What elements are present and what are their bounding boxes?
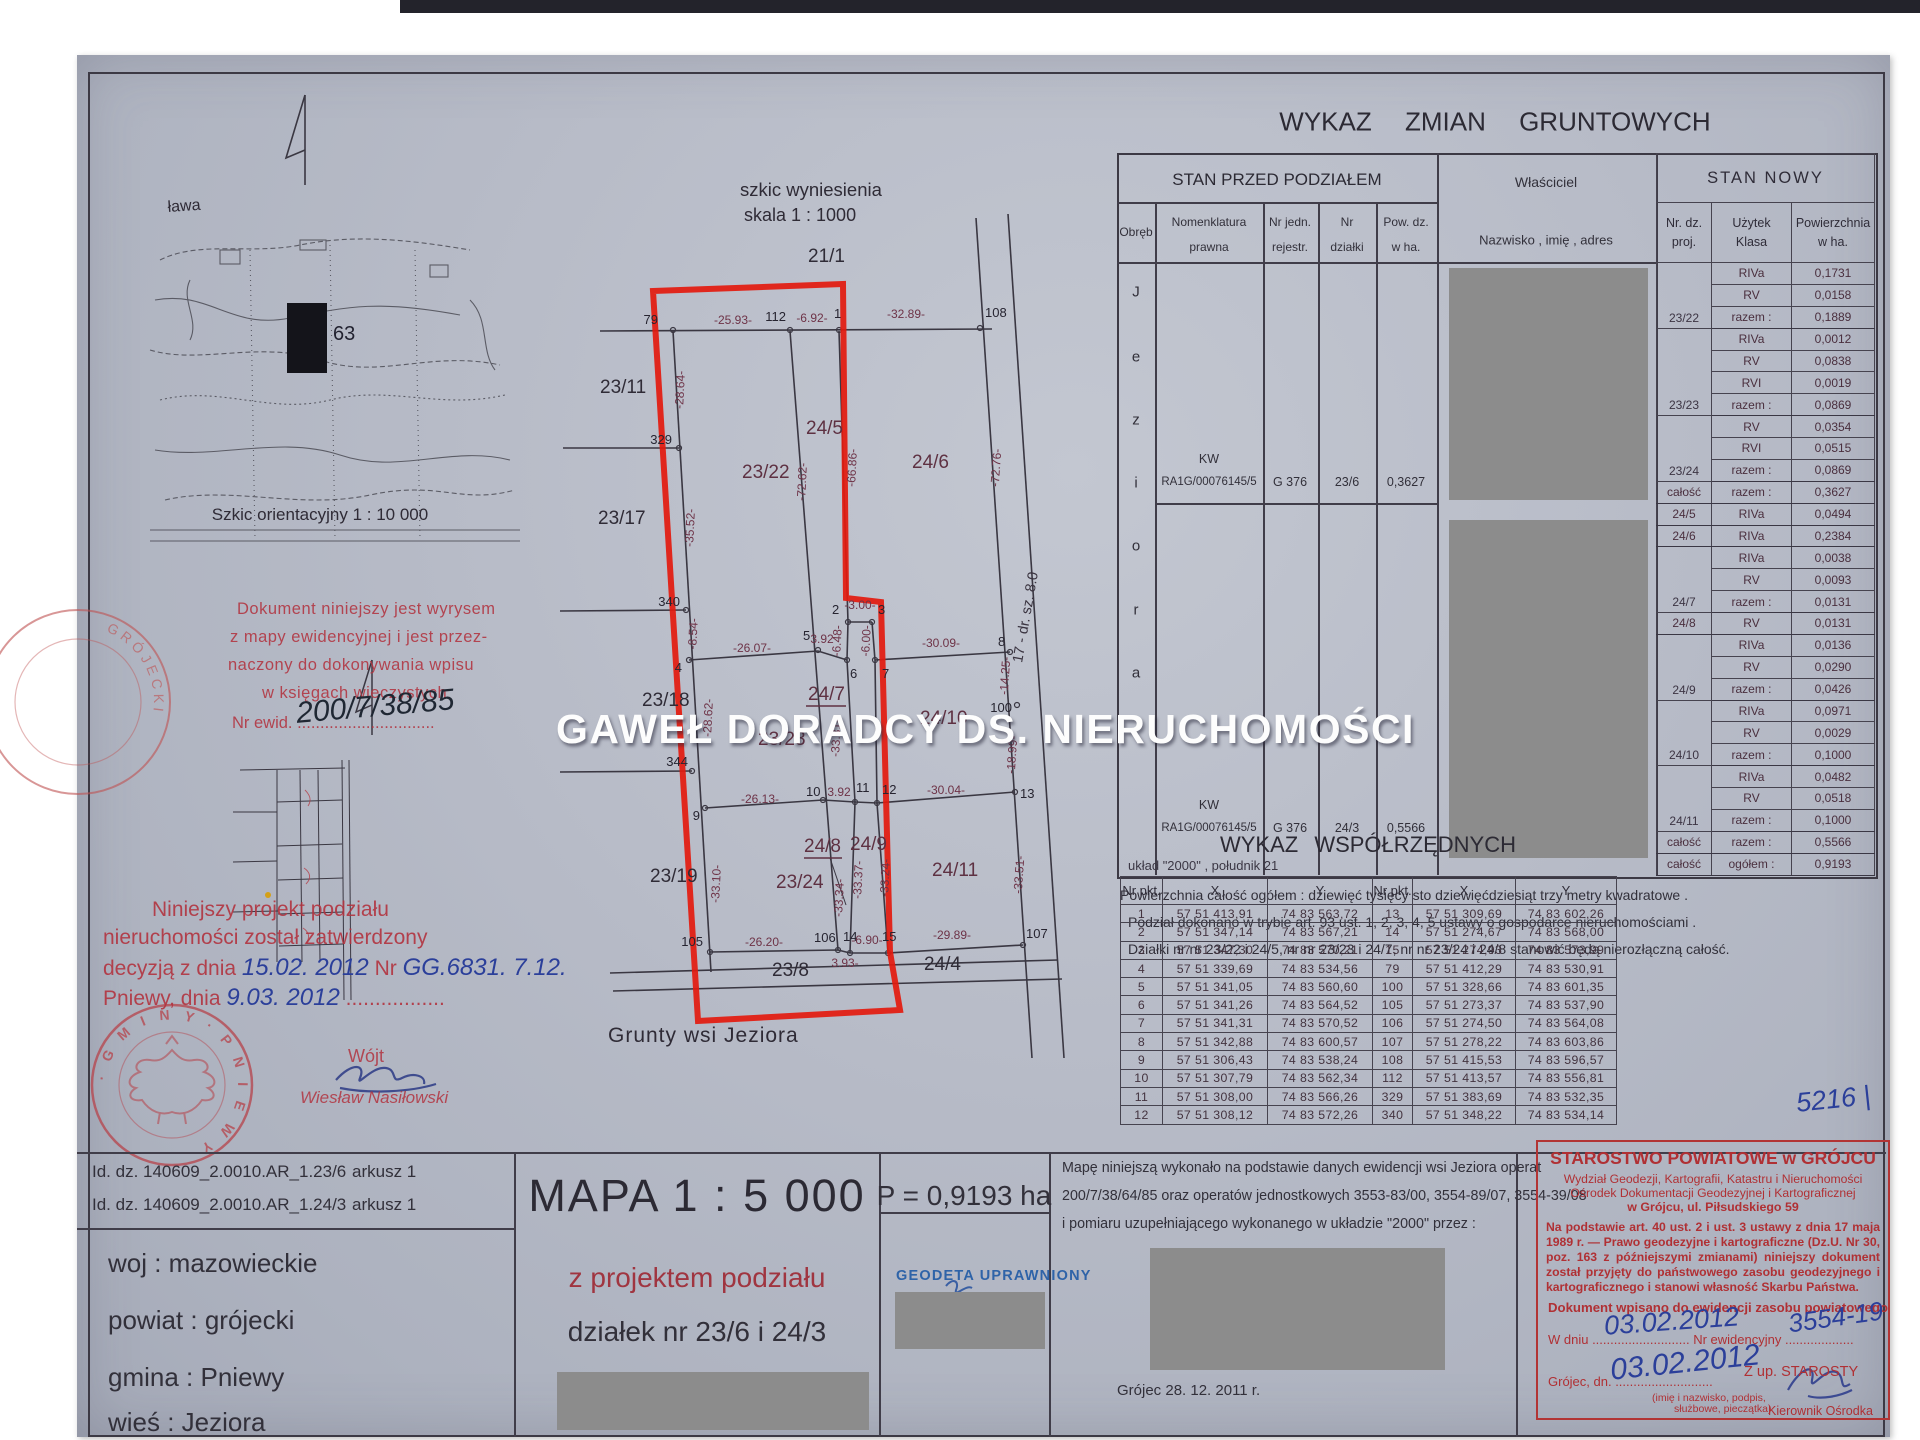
dimension-label: -28.64- <box>672 370 688 409</box>
county: powiat : grójecki <box>108 1305 294 1336</box>
point-label: 9 <box>693 808 700 823</box>
col-header: Nr jedn. <box>1269 215 1311 229</box>
col-header-obreb: Obręb <box>1119 225 1152 239</box>
surveyor-label: GEODETA UPRAWNIONY <box>896 1268 1092 1284</box>
col-header: w ha. <box>1392 240 1421 254</box>
footer-note: 200/7/38/64/85 oraz operatów jednostkowy… <box>1062 1188 1587 1204</box>
parcel-cell: 23/23 <box>1657 328 1712 416</box>
point-label: 344 <box>666 754 688 769</box>
col-header: działki <box>1330 240 1363 254</box>
dimension-label: -30.04- <box>927 783 965 797</box>
col-header: Pow. dz. <box>1383 215 1428 229</box>
dimension-label: -33.51- <box>1011 855 1028 894</box>
footer-note: Mapę niniejszą wykonało na podstawie dan… <box>1062 1160 1541 1176</box>
orientation-place-label: ława <box>167 197 201 216</box>
stamp-position: Kierownik Ośrodka <box>1768 1404 1873 1418</box>
point-label: 329 <box>650 432 672 447</box>
dimension-label: -33.34- <box>831 878 847 917</box>
stamp-authority: Z up. STAROSTY <box>1744 1364 1858 1380</box>
point-label: 107 <box>1026 926 1048 941</box>
col-header: Nr pkt. <box>1373 877 1413 905</box>
col-header: Nr pkt. <box>1121 877 1163 905</box>
scanned-cadastral-document: { "watermark": "GAWEŁ DORADCY DS. NIERUC… <box>0 0 1920 1440</box>
starostwo-stamp: STAROSTWO POWIATOWE w GRÓJCU Wydział Geo… <box>1536 1140 1890 1420</box>
dimension-label: -6.48- <box>829 625 845 657</box>
coord-row: 257 51 347,1474 83 567,211457 51 274,677… <box>1121 923 1617 941</box>
coords-table: Nr pkt.XY Nr pkt.XY 157 51 413,9174 83 5… <box>1120 876 1617 1125</box>
coord-row: 457 51 339,6974 83 534,567957 51 412,297… <box>1121 959 1617 977</box>
dimension-label: -8.54- <box>685 618 701 650</box>
map-scale-title: MAPA 1 : 5 000 <box>528 1170 865 1222</box>
map-subtitle: działek nr 23/6 i 24/3 <box>568 1316 826 1348</box>
owner-redaction <box>1449 520 1648 858</box>
col-header: prawna <box>1189 240 1228 254</box>
col-header: Nr <box>1341 215 1354 229</box>
point-label: 340 <box>658 594 680 609</box>
obreb-letter: o <box>1132 538 1140 555</box>
stamp-title: STAROSTWO POWIATOWE w GRÓJCU <box>1550 1148 1876 1169</box>
parcel-cell: 23/24 <box>1657 416 1712 482</box>
footer-note: i pomiaru uzupełniającego wykonanego w u… <box>1062 1216 1476 1232</box>
dimension-label: -72.62- <box>794 462 810 501</box>
parcel-label: 23/22 <box>742 462 790 483</box>
point-label: 3 <box>878 602 885 617</box>
dimension-label: -6.90- <box>851 933 882 947</box>
approval-stamp-line: decyzją z dnia 15.02. 2012 Nr GG.6831. 7… <box>103 954 567 982</box>
coords-subtitle: układ "2000" , południk 21 <box>1128 858 1278 873</box>
dimension-label: -33.37- <box>850 860 866 899</box>
coord-row: 1157 51 308,0074 83 566,2632957 51 383,6… <box>1121 1087 1617 1105</box>
col-header: Nr. dz.proj. <box>1657 203 1712 263</box>
parcel-label: 23/17 <box>598 508 646 529</box>
orientation-caption: Szkic orientacyjny 1 : 10 000 <box>212 505 428 524</box>
map-id-line: Id. dz. 140609_2.0010.AR_1.24/3 <box>92 1195 346 1215</box>
col-header: UżytekKlasa <box>1712 203 1792 263</box>
parcel-cell: 23/22 <box>1657 263 1712 329</box>
point-label: 4 <box>675 660 682 675</box>
north-arrow-icon <box>286 95 305 185</box>
dimension-label: -26.07- <box>733 641 771 655</box>
dimension-label: -29.89- <box>933 928 971 942</box>
obreb-letter: r <box>1134 602 1139 619</box>
owner-redaction <box>1449 268 1648 500</box>
wyrys-stamp-line: z mapy ewidencyjnej i jest przez- <box>230 628 488 647</box>
col-header: Nomenklatura <box>1172 215 1247 229</box>
dzialka-value: 23/6 <box>1335 475 1359 489</box>
obreb-letter: i <box>1134 475 1137 492</box>
point-label: 15 <box>882 929 896 944</box>
stan-nowy-header: STAN NOWY <box>1657 154 1875 203</box>
svg-text:GRÓJECKI: GRÓJECKI <box>105 619 167 716</box>
sketch-caption: Grunty wsi Jeziora <box>608 1024 799 1047</box>
village: wieś : Jeziora <box>108 1407 266 1438</box>
point-label: 11 <box>856 780 870 795</box>
voivodeship: woj : mazowieckie <box>108 1248 318 1279</box>
parcel-label: 23/11 <box>600 377 646 398</box>
parcel-cell: 24/10 <box>1657 700 1712 766</box>
dimension-label: -26.13- <box>741 792 779 806</box>
map-subtitle-red: z projektem podziału <box>569 1262 826 1294</box>
parcel-label: 24/4 <box>924 954 961 975</box>
dimension-label: -30.09- <box>922 636 960 650</box>
kw-label: KW <box>1199 798 1219 812</box>
eagle-icon <box>130 1036 215 1124</box>
watermark: GAWEŁ DORADCY DS. NIERUCHOMOŚCI <box>556 706 1386 753</box>
dimension-label: -33.24- <box>877 858 893 897</box>
coords-title: WYKAZ WSPÓŁRZĘDNYCH <box>1220 832 1516 858</box>
rejestr-value: G 376 <box>1273 475 1307 489</box>
orientation-parcel-number: 63 <box>333 323 355 345</box>
dimension-label: -35.52- <box>682 508 698 547</box>
stan-nowy-table: STAN NOWY Nr. dz.proj. UżytekKlasa Powie… <box>1656 153 1875 876</box>
dimension-label: -33.10- <box>708 864 724 903</box>
parcel-label: 24/8 <box>804 836 841 857</box>
obreb-letter: z <box>1132 412 1140 429</box>
orientation-sketch <box>150 239 520 541</box>
stan-przed-header: STAN PRZED PODZIAŁEM <box>1172 170 1381 190</box>
dimension-label: -6.92- <box>796 311 827 325</box>
dimension-label: 3.92 <box>827 785 851 799</box>
col-header: Powierzchniaw ha. <box>1792 203 1875 263</box>
point-label: 7 <box>882 666 889 681</box>
point-label: 108 <box>985 305 1007 320</box>
pow-value: 0,3627 <box>1387 475 1425 489</box>
point-label: 8 <box>998 634 1005 649</box>
sheet-number: arkusz 1 <box>352 1162 416 1182</box>
parcel-label: 24/5 <box>806 418 843 439</box>
coord-row: 1057 51 307,7974 83 562,3411257 51 413,5… <box>1121 1069 1617 1087</box>
parcel-label: 24/7 <box>808 684 845 705</box>
obreb-letter: J <box>1132 284 1140 301</box>
gmina-seal-arc-text: · G M I N Y · P N I E W Y <box>93 1006 251 1159</box>
parcel-label: 24/9 <box>850 834 887 855</box>
coord-row: 757 51 341,3174 83 570,5210657 51 274,50… <box>1121 1014 1617 1032</box>
commune: gmina : Pniewy <box>108 1362 284 1393</box>
redaction-box <box>1150 1248 1445 1370</box>
wojt-title: Wójt <box>348 1046 384 1067</box>
point-label: 5 <box>803 628 810 643</box>
parcel-label: 24/6 <box>912 452 949 473</box>
parcel-cell: 24/11 <box>1657 766 1712 832</box>
dimension-label: -32.89- <box>887 307 925 321</box>
kw-number: RA1G/00076145/5 <box>1161 476 1256 488</box>
parcel-label: 23/19 <box>650 866 698 887</box>
wlasciciel-subheader: Nazwisko , imię , adres <box>1479 233 1613 248</box>
point-label: 112 <box>765 309 786 324</box>
coord-row: 157 51 413,9174 83 563,721357 51 309,697… <box>1121 905 1617 923</box>
dimension-label: -6.00- <box>858 625 874 657</box>
wojt-name: Wiesław Nasiłowski <box>300 1088 448 1108</box>
point-label: 10 <box>806 784 820 799</box>
parcel-cell: 24/7 <box>1657 547 1712 613</box>
starostwo-stamp-arc-text: GRÓJECKI <box>105 619 167 716</box>
point-label: 1 <box>834 306 841 321</box>
parcel-label: 24/11 <box>932 860 978 881</box>
orientation-parcel-fill <box>287 303 327 373</box>
map-id-line: Id. dz. 140609_2.0010.AR_1.23/6 <box>92 1162 346 1182</box>
parcel-label: 23/24 <box>776 872 824 893</box>
area-value: P = 0,9193 ha <box>877 1180 1052 1212</box>
wyrys-stamp-line: Dokument niniejszy jest wyrysem <box>237 600 496 619</box>
sheet-number: arkusz 1 <box>352 1195 416 1215</box>
redaction-box <box>557 1372 869 1430</box>
coord-row: 557 51 341,0574 83 560,6010057 51 328,66… <box>1121 978 1617 996</box>
wykaz-zmian-title: WYKAZ ZMIAN GRUNTOWYCH <box>1279 107 1710 138</box>
point-label: 106 <box>814 930 836 945</box>
dimension-label: -66.86- <box>844 448 860 487</box>
point-label: 6 <box>850 666 857 681</box>
approval-stamp-line: Pniewy, dnia 9.03. 2012 ................… <box>103 984 445 1012</box>
gmina-pniewy-seal: · G M I N Y · P N I E W Y <box>92 1005 252 1165</box>
col-header: rejestr. <box>1272 240 1308 254</box>
sketch-title: szkic wyniesienia <box>740 179 883 200</box>
coord-row: 857 51 342,8874 83 600,5710757 51 278,22… <box>1121 1033 1617 1051</box>
obreb-letter: a <box>1132 665 1140 682</box>
dimension-label: -14.25- <box>997 656 1014 695</box>
coord-row: 957 51 306,4374 83 538,2410857 51 415,53… <box>1121 1051 1617 1069</box>
dimension-label: -3.00- <box>844 598 875 612</box>
dimension-label: -26.20- <box>745 935 783 949</box>
dimension-label: 3.93- <box>831 956 858 970</box>
approval-stamp-line: nieruchomości został zatwierdzony <box>103 926 427 950</box>
redaction-box <box>895 1292 1045 1349</box>
approval-stamp-line: Niniejszy projekt podziału <box>152 898 389 922</box>
coord-row: 357 51 347,3074 83 570,211557 51 274,937… <box>1121 941 1617 959</box>
starostwo-round-stamp: GRÓJECKI <box>0 610 170 794</box>
svg-text:· G M I N Y · P N I E W Y: · G M I N Y · P N I E W Y <box>93 1006 251 1159</box>
parcel-cell: 24/9 <box>1657 634 1712 700</box>
dimension-label: -72.76- <box>988 448 1005 487</box>
point-label: 105 <box>681 934 703 949</box>
point-label: 2 <box>832 602 839 617</box>
obreb-letter: e <box>1132 349 1140 366</box>
point-label: 79 <box>644 312 658 327</box>
stamp-legal-text: Na podstawie art. 40 ust. 2 i ust. 3 ust… <box>1546 1220 1880 1294</box>
sketch-scale: skala 1 : 1000 <box>744 205 856 225</box>
parcel-label: 23/8 <box>772 960 809 981</box>
dimension-label: -25.93- <box>714 313 752 327</box>
point-label: 13 <box>1020 786 1034 801</box>
footer-date: Grójec 28. 12. 2011 r. <box>1117 1382 1260 1399</box>
wlasciciel-header: Właściciel <box>1515 174 1577 190</box>
parcel-label: 21/1 <box>808 246 845 267</box>
kw-label: KW <box>1199 452 1219 466</box>
wyrys-stamp-line: naczony do dokonywania wpisu <box>228 656 474 675</box>
coord-row: 657 51 341,2674 83 564,5210557 51 273,37… <box>1121 996 1617 1014</box>
coord-row: 1257 51 308,1274 83 572,2634057 51 348,2… <box>1121 1106 1617 1124</box>
point-label: 12 <box>882 782 896 797</box>
